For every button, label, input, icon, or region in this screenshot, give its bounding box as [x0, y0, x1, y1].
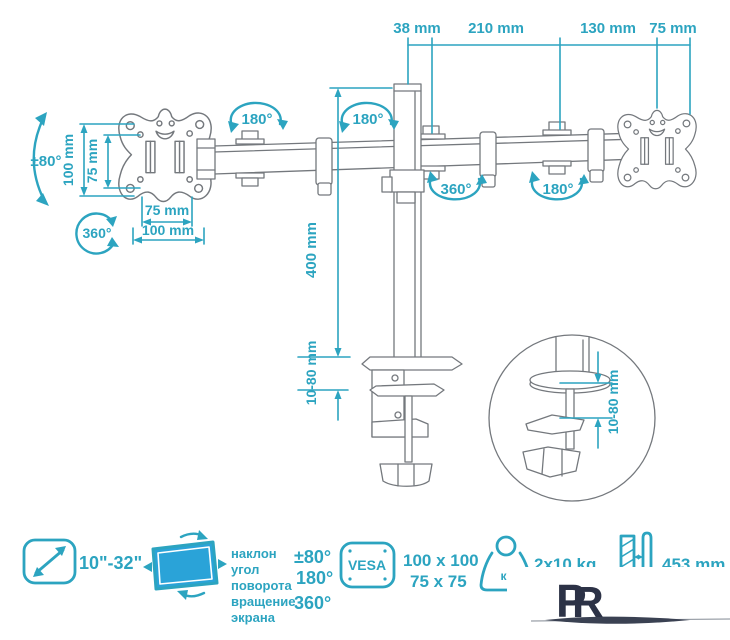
- center-pole: [382, 84, 424, 360]
- top-dim-38-label: 38 mm: [393, 20, 441, 37]
- adjust-line-4: вращение: [231, 594, 295, 609]
- desk-clamp: [362, 357, 462, 486]
- vesa-horizontal-75-label: 75 mm: [145, 202, 189, 218]
- monitor-adjust-feature: наклон угол поворота вращение экрана ±80…: [143, 530, 333, 625]
- adjust-line-5: экрана: [231, 610, 276, 625]
- watermark: P R: [507, 567, 730, 640]
- swivel-circle: 360°: [76, 214, 119, 254]
- tilt-range-arc: ±80°: [31, 112, 62, 206]
- arm-rotation-4: 180°: [529, 171, 589, 199]
- vesa-horizontal-100-label: 100 mm: [142, 222, 194, 238]
- vesa-size-2: 75 x 75: [410, 572, 467, 591]
- adjust-value-3: 360°: [294, 593, 331, 613]
- screen-size-label: 10"-32": [79, 553, 142, 573]
- dual-monitor-mount-diagram: 38 mm 210 mm 130 mm 75 mm 100 mm 75 mm: [0, 0, 730, 640]
- arm-rotation-1: 180°: [228, 103, 288, 133]
- tilt-range-label: ±80°: [31, 153, 62, 170]
- adjust-value-2: 180°: [296, 568, 333, 588]
- arm-rotation-3-label: 360°: [440, 181, 471, 198]
- product-diagram-page: 38 mm 210 mm 130 mm 75 mm 100 mm 75 mm: [0, 0, 730, 640]
- adjust-line-1: наклон: [231, 546, 277, 561]
- detail-range-label: 10-80 mm: [605, 370, 621, 435]
- arm-rotation-1-label: 180°: [241, 111, 272, 128]
- top-dim-130-label: 130 mm: [580, 20, 636, 37]
- arm-rotation-4-label: 180°: [542, 181, 573, 198]
- dimension-vesa-horizontal-100: 100 mm: [133, 222, 204, 244]
- adjust-line-3: поворота: [231, 578, 292, 593]
- vesa-icon-label: VESA: [348, 557, 386, 573]
- mount-drawing: [119, 84, 696, 501]
- weight-icon: [497, 537, 515, 555]
- watermark-letter-r: R: [572, 578, 604, 627]
- arm-rotation-2-label: 180°: [352, 111, 383, 128]
- vesa-vertical-100-label: 100 mm: [60, 134, 76, 186]
- dimension-clamp-range: 10-80 mm: [298, 341, 348, 420]
- vesa-plate-right: [618, 110, 696, 188]
- screen-size-feature: 10"-32": [24, 540, 142, 583]
- adjust-value-1: ±80°: [294, 547, 331, 567]
- vesa-vertical-75-label: 75 mm: [84, 139, 100, 183]
- swivel-circle-label: 360°: [83, 225, 112, 241]
- arm-rotation-2: 180°: [339, 103, 399, 133]
- clamp-range-label: 10-80 mm: [303, 341, 319, 406]
- vesa-size-1: 100 x 100: [403, 551, 479, 570]
- top-dim-210-label: 210 mm: [468, 20, 524, 37]
- top-dim-75-label: 75 mm: [649, 20, 697, 37]
- adjust-line-2: угол: [231, 562, 259, 577]
- watermark-background: [507, 567, 730, 640]
- vesa-feature: VESA 100 x 100 75 x 75: [341, 543, 479, 591]
- left-plate-bracket: [197, 139, 215, 179]
- pole-400-label: 400 mm: [303, 222, 320, 278]
